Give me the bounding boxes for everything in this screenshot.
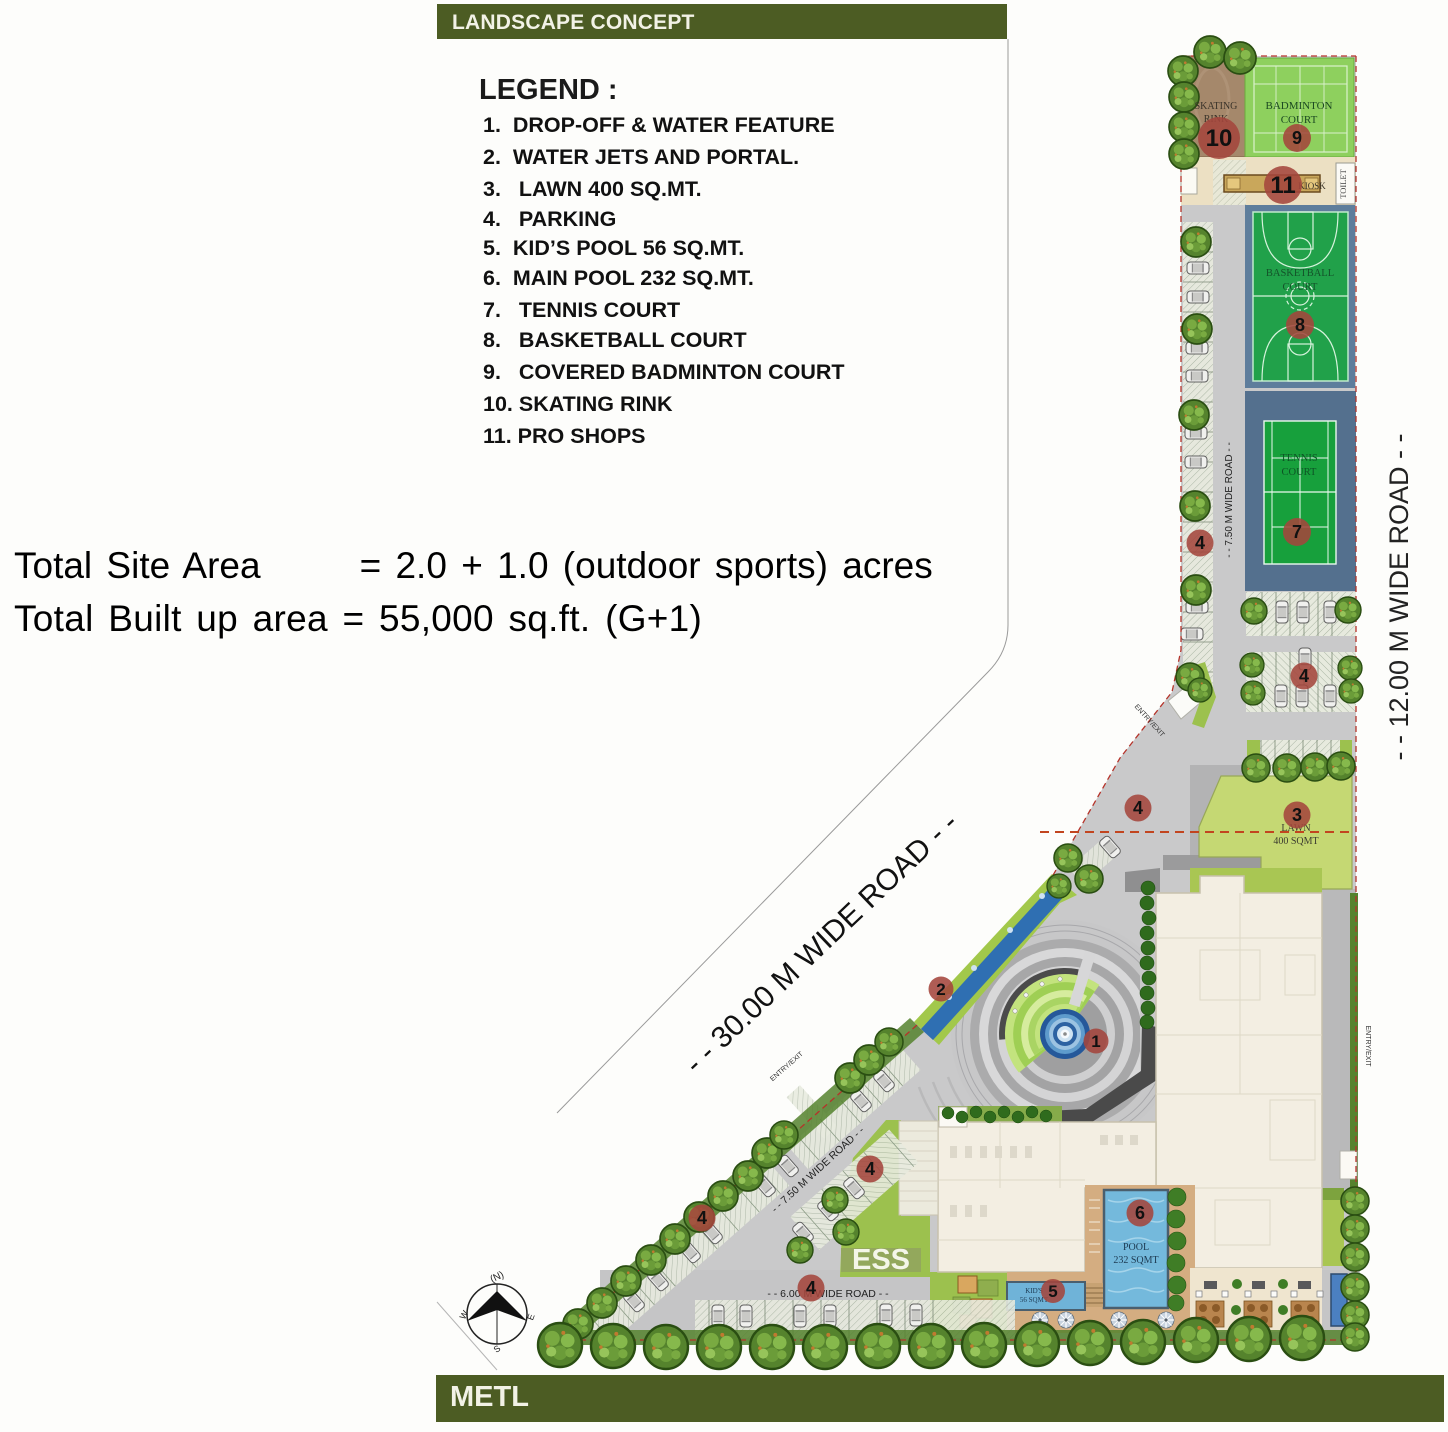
svg-text:6: 6 (1135, 1203, 1145, 1223)
svg-text:10: 10 (1206, 125, 1233, 152)
svg-text:1: 1 (1091, 1032, 1100, 1051)
svg-text:3: 3 (1292, 805, 1302, 825)
svg-text:COURT: COURT (1282, 467, 1318, 478)
svg-text:KID'S: KID'S (1025, 1287, 1043, 1295)
svg-text:4: 4 (865, 1159, 875, 1179)
svg-text:ENTRY/EXIT: ENTRY/EXIT (1364, 1025, 1371, 1067)
svg-text:9: 9 (1292, 128, 1302, 148)
svg-text:ENTRY/EXIT: ENTRY/EXIT (769, 1050, 805, 1083)
svg-text:4: 4 (1133, 798, 1143, 818)
svg-text:- - 6.00 M WIDE ROAD - -: - - 6.00 M WIDE ROAD - - (767, 1288, 889, 1300)
svg-text:- - 7.50 M WIDE ROAD - -: - - 7.50 M WIDE ROAD - - (1224, 442, 1235, 558)
svg-text:4: 4 (1299, 666, 1309, 686)
svg-text:- - 12.00 M WIDE ROAD - -: - - 12.00 M WIDE ROAD - - (1384, 433, 1414, 760)
svg-text:POOL: POOL (1123, 1242, 1149, 1253)
svg-text:BADMINTON: BADMINTON (1265, 100, 1332, 112)
svg-text:ESS: ESS (852, 1244, 910, 1276)
svg-text:BASKETBALL: BASKETBALL (1266, 268, 1334, 279)
svg-text:2: 2 (936, 980, 945, 999)
svg-text:400 SQMT: 400 SQMT (1273, 836, 1318, 847)
svg-text:SKATING: SKATING (1195, 101, 1238, 112)
svg-text:TENNIS: TENNIS (1280, 453, 1317, 464)
svg-text:5: 5 (1048, 1282, 1057, 1301)
svg-text:TOILET: TOILET (1338, 168, 1348, 198)
svg-text:4: 4 (806, 1278, 816, 1298)
svg-text:11: 11 (1270, 172, 1295, 199)
svg-text:S: S (492, 1343, 503, 1355)
svg-text:7: 7 (1292, 522, 1302, 542)
svg-text:KIOSK: KIOSK (1298, 181, 1326, 191)
svg-text:8: 8 (1295, 315, 1305, 335)
svg-text:(N): (N) (489, 1270, 506, 1286)
svg-text:4: 4 (1195, 533, 1205, 553)
svg-text:232 SQMT: 232 SQMT (1113, 1255, 1158, 1266)
svg-text:W: W (458, 1308, 471, 1321)
svg-text:4: 4 (697, 1208, 707, 1228)
svg-text:COURT: COURT (1283, 282, 1319, 293)
